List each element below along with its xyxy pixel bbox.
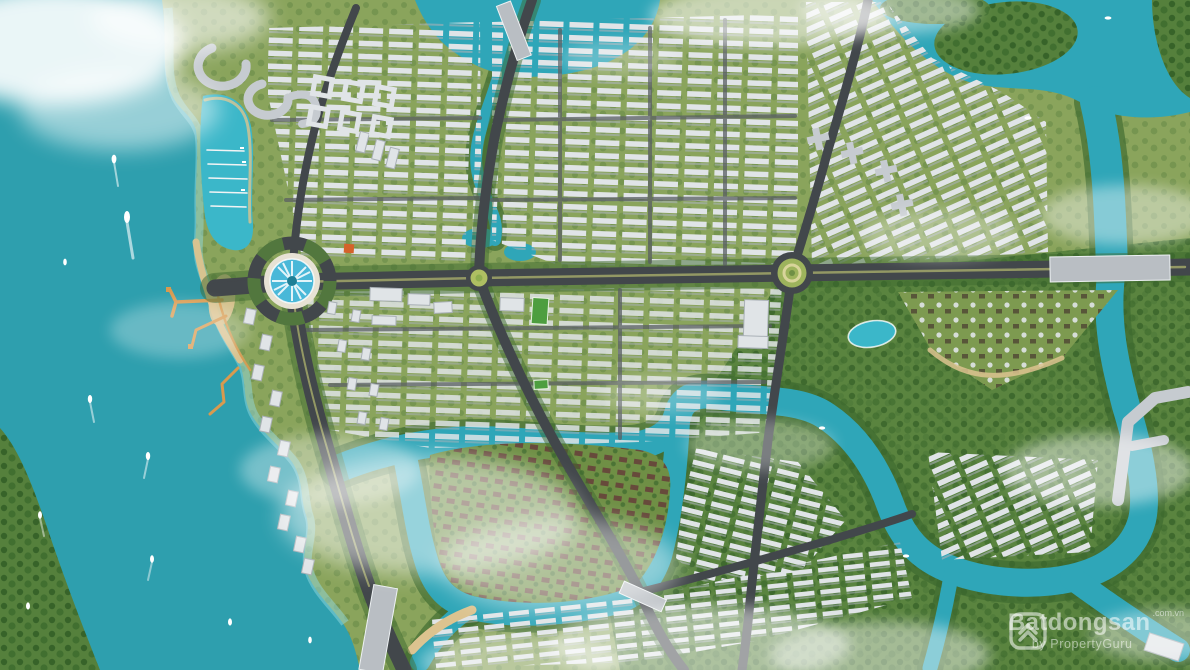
watermark-byline: by PropertyGuru bbox=[1032, 638, 1184, 651]
dock-pier bbox=[210, 192, 247, 193]
boat bbox=[63, 259, 67, 266]
boulevard-river-bridge bbox=[1050, 255, 1170, 282]
mall-building bbox=[743, 300, 768, 339]
tower bbox=[327, 301, 337, 314]
boat bbox=[903, 554, 909, 557]
dock-pier bbox=[211, 206, 246, 207]
civic-building bbox=[372, 316, 396, 326]
tower bbox=[361, 347, 371, 360]
cloud bbox=[240, 434, 420, 506]
boat bbox=[26, 602, 30, 609]
orange-roof-pavilion bbox=[344, 244, 355, 254]
cloud bbox=[560, 40, 680, 76]
tower bbox=[369, 383, 379, 396]
cloud bbox=[1005, 434, 1190, 506]
moored-boat bbox=[240, 147, 244, 149]
east-roundabout bbox=[771, 252, 813, 294]
masterplan-scene bbox=[0, 0, 1190, 670]
civic-building bbox=[434, 302, 453, 314]
moored-boat bbox=[241, 189, 245, 191]
civic-building bbox=[500, 298, 524, 312]
cloud bbox=[685, 419, 835, 471]
cloud bbox=[860, 209, 1020, 261]
tower bbox=[337, 339, 347, 352]
fountain-roundabout bbox=[254, 243, 330, 319]
dock-pier bbox=[209, 178, 247, 179]
boat bbox=[819, 426, 825, 429]
masterplan-render: Batdongsan .com.vn by PropertyGuru bbox=[0, 0, 1190, 670]
boat bbox=[228, 618, 232, 625]
tower bbox=[379, 417, 389, 430]
cloud bbox=[440, 517, 680, 613]
cloud bbox=[110, 302, 250, 358]
school-building bbox=[408, 294, 430, 306]
sports-pitch bbox=[534, 380, 548, 390]
dock-pier bbox=[208, 164, 246, 165]
small-roundabout bbox=[466, 265, 492, 291]
roundabout-centre bbox=[789, 270, 795, 276]
fountain-centre bbox=[287, 276, 297, 286]
cloud bbox=[20, 70, 220, 150]
boat bbox=[308, 637, 312, 644]
boat bbox=[1105, 16, 1112, 19]
dock-pier bbox=[207, 150, 244, 151]
roundabout-centre bbox=[476, 275, 483, 282]
boat bbox=[1024, 116, 1031, 119]
watermark-suffix: .com.vn bbox=[1152, 609, 1184, 618]
cloud bbox=[600, 375, 720, 415]
pier-head bbox=[166, 287, 171, 292]
mall-wing bbox=[738, 335, 768, 348]
tower bbox=[351, 309, 361, 322]
tower bbox=[357, 411, 367, 424]
batdongsan-watermark: Batdongsan .com.vn by PropertyGuru bbox=[1008, 611, 1184, 651]
tower bbox=[347, 377, 357, 390]
sports-pitch bbox=[531, 297, 549, 324]
moored-boat bbox=[242, 161, 246, 163]
school-building bbox=[370, 287, 402, 301]
